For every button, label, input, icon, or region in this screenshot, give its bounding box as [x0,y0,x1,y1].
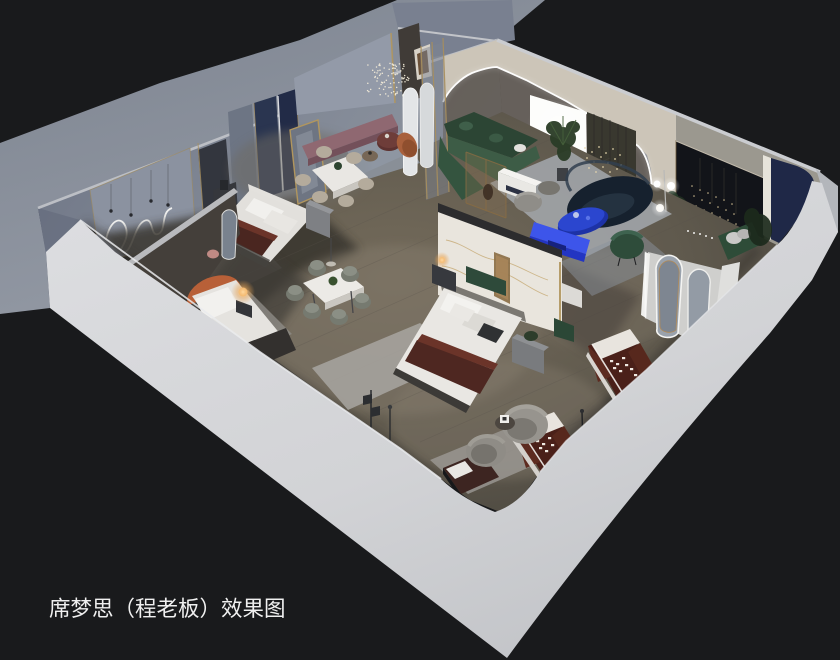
svg-text:席梦思（程老板）效果图: 席梦思（程老板）效果图 [49,597,286,621]
